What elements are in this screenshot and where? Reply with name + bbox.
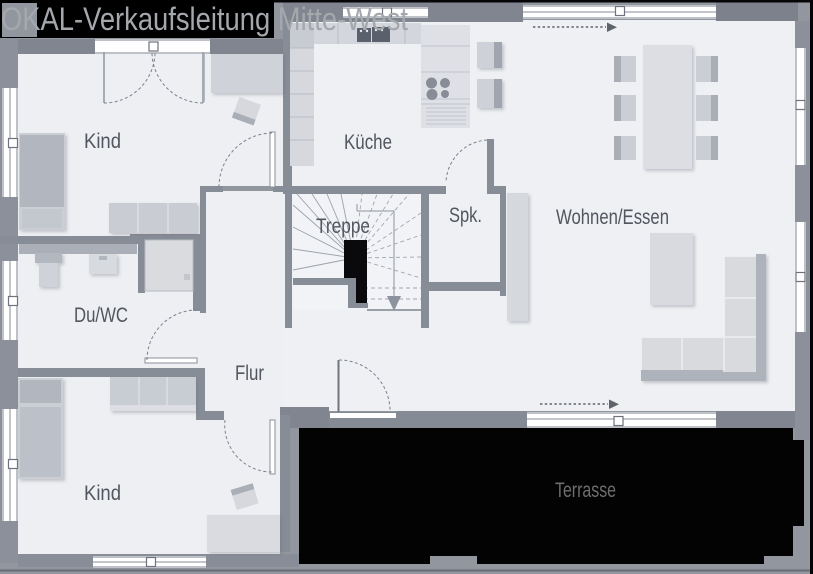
svg-text:Kind: Kind bbox=[84, 482, 121, 505]
svg-text:Du/WC: Du/WC bbox=[74, 304, 128, 327]
svg-text:Wohnen/Essen: Wohnen/Essen bbox=[556, 206, 669, 229]
svg-text:Spk.: Spk. bbox=[449, 204, 482, 227]
svg-text:Treppe: Treppe bbox=[316, 215, 370, 238]
svg-text:Flur: Flur bbox=[235, 362, 264, 385]
svg-text:Küche: Küche bbox=[344, 131, 392, 154]
svg-text:Terrasse: Terrasse bbox=[555, 479, 616, 502]
svg-text:Kind: Kind bbox=[84, 130, 121, 153]
svg-text:OKAL-Verkaufsleitung Mitte-Wes: OKAL-Verkaufsleitung Mitte-West bbox=[1, 1, 408, 37]
